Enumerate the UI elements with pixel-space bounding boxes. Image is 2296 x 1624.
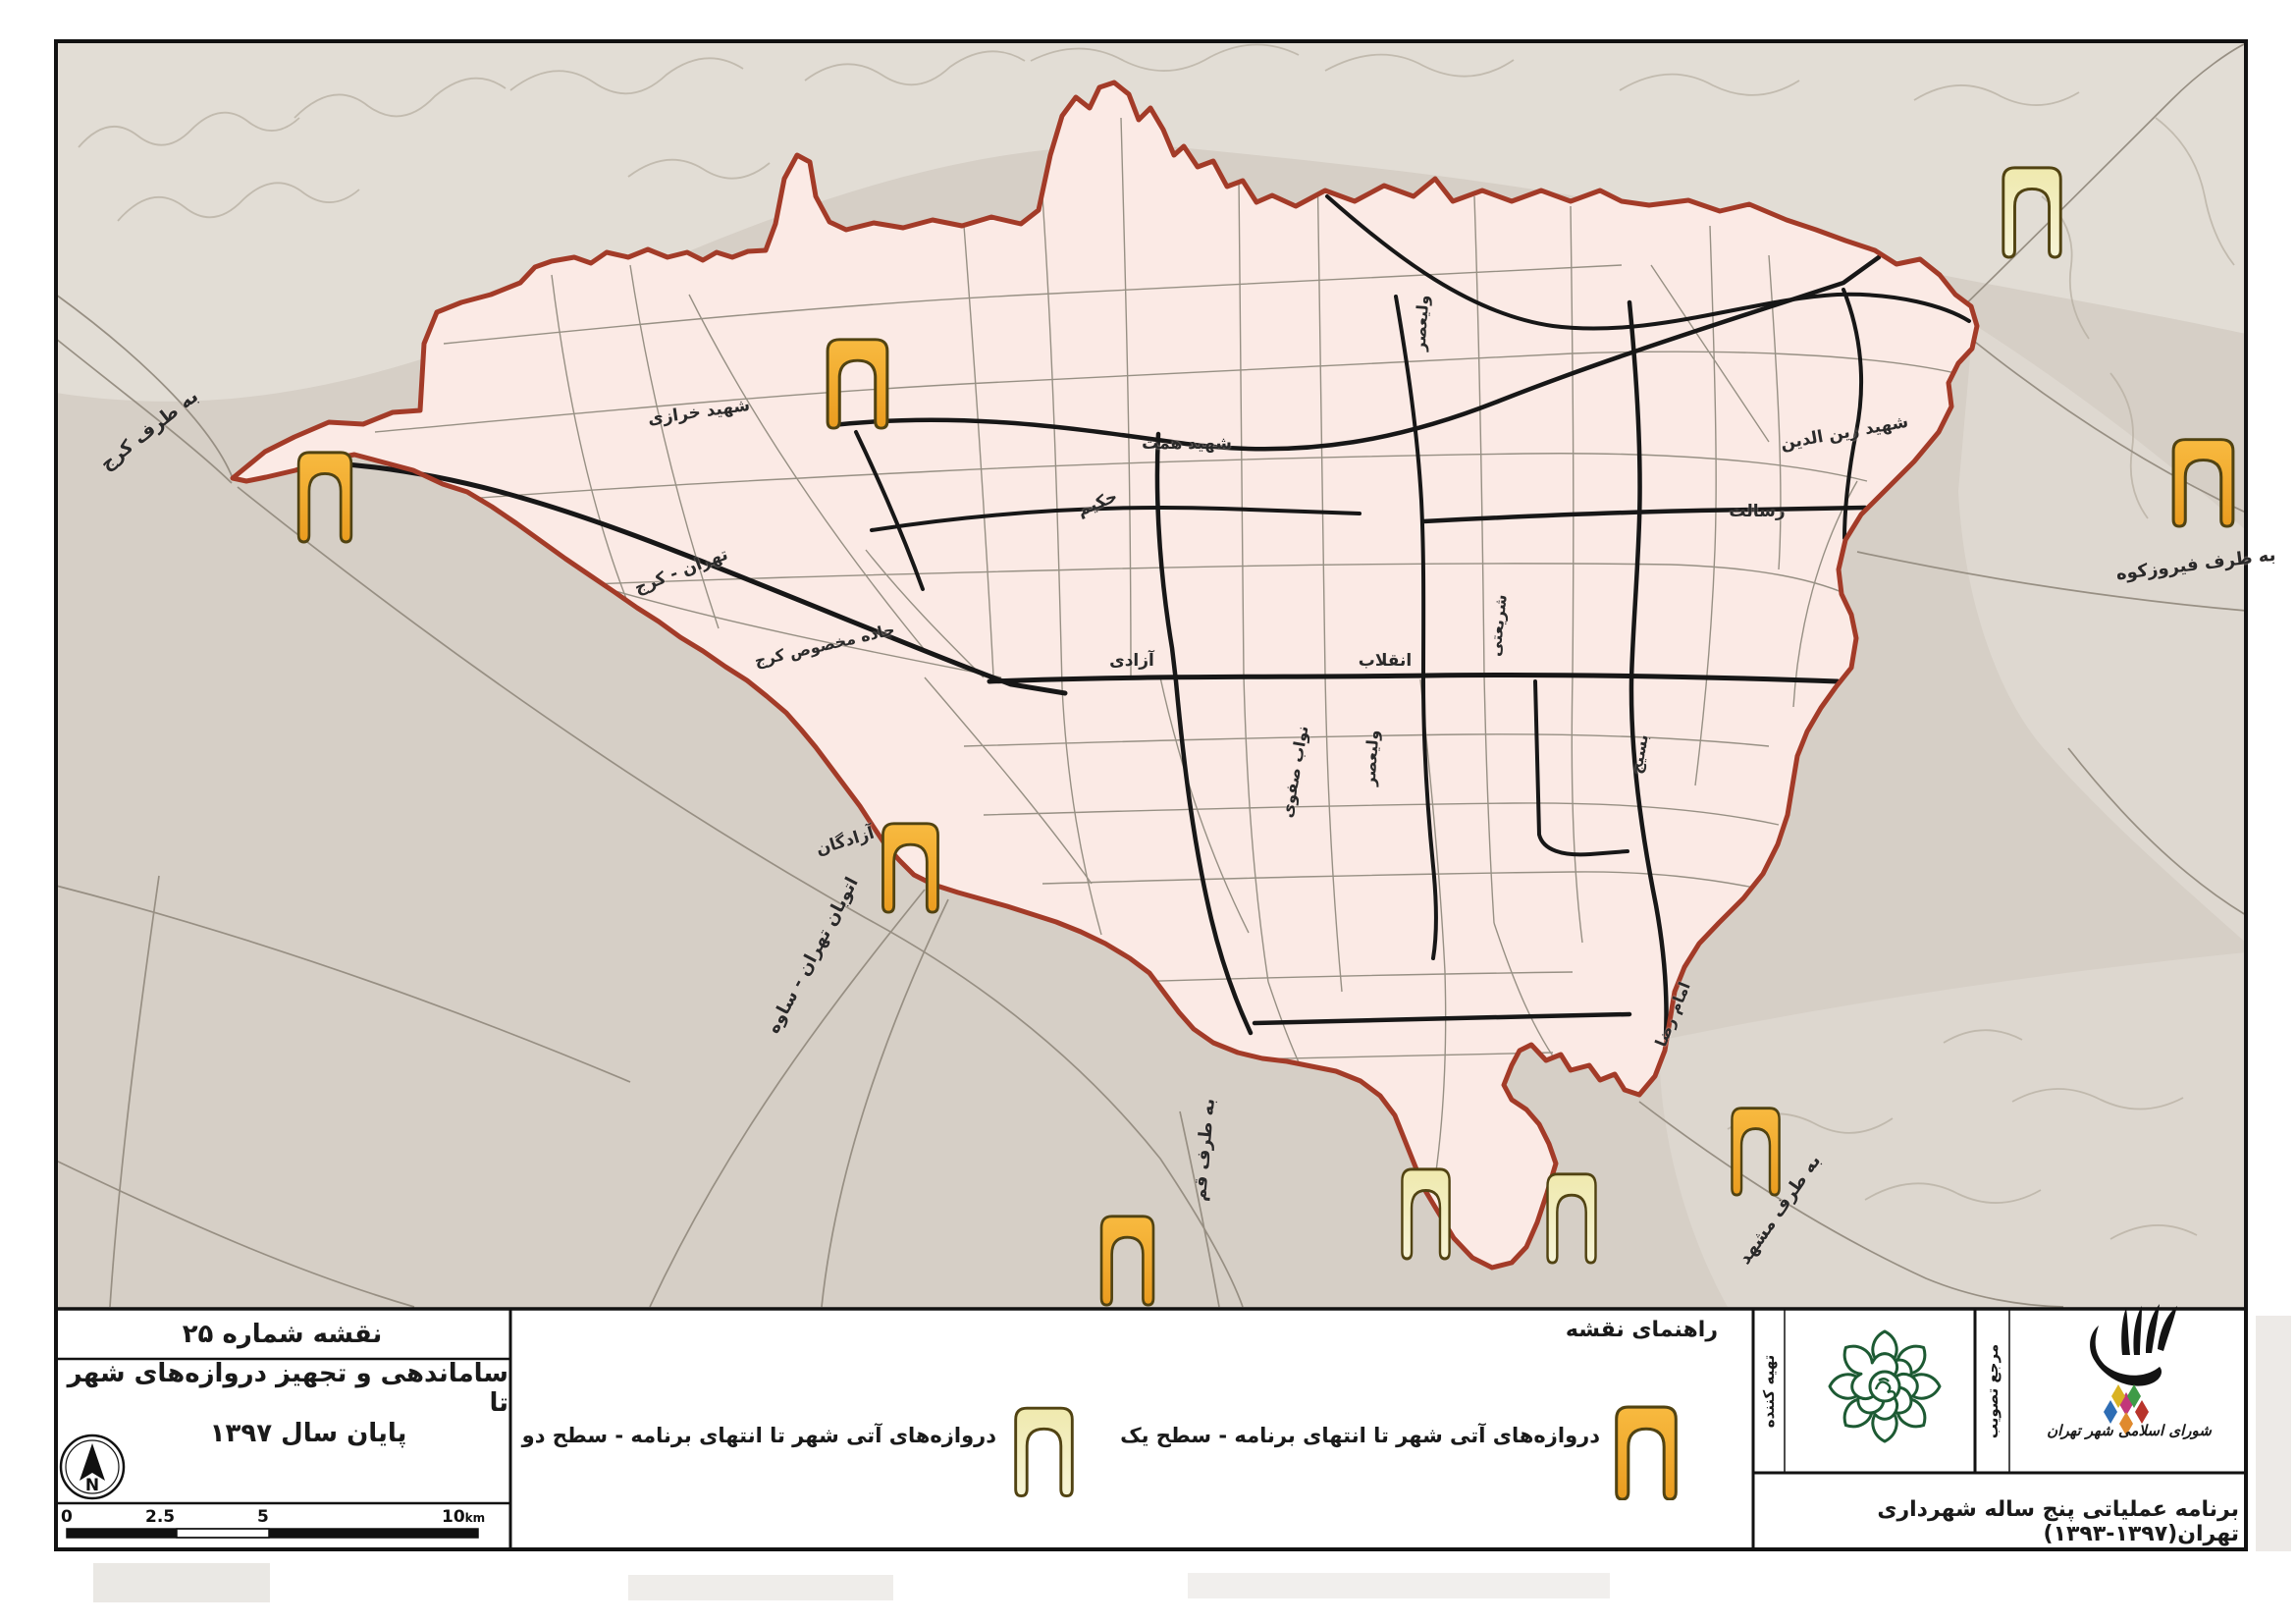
road-label: اتوبان تهران - ساوه	[763, 874, 863, 1037]
road-label: شهید خرازی	[647, 396, 751, 429]
legend-gate-level2-icon	[1008, 1399, 1080, 1500]
north-letter: N	[85, 1476, 99, 1495]
council-logo	[2090, 1304, 2177, 1435]
scale-label-25: 2.5	[145, 1507, 175, 1527]
map-number: نقشه شماره ۲۵	[56, 1312, 508, 1357]
approved-by-column: مرجع تصویب	[1976, 1309, 2009, 1473]
road-label: شریعتی	[1485, 593, 1511, 657]
road-label: به طرف مشهد	[1735, 1151, 1825, 1268]
legend-entry-level1-label: دروازه‌های آتی شهر تا انتهای برنامه - سط…	[1129, 1424, 1600, 1447]
road-label: نواب صفوی	[1277, 725, 1311, 820]
road-label: ولیعصر	[1411, 295, 1433, 352]
scale-label-5: 5	[257, 1507, 269, 1527]
map-sheet: N	[0, 0, 2296, 1624]
scan-artifact	[2256, 1316, 2291, 1551]
scale-unit: km	[465, 1511, 485, 1525]
road-labels-layer: به طرف کرجشهید خرازیتهران - کرججاده مخصو…	[0, 0, 2296, 1309]
road-label: رسالت	[1729, 502, 1785, 521]
road-label: به طرف کرج	[96, 385, 202, 474]
prepared-by-label: تهیه کننده	[1760, 1354, 1778, 1427]
map-title-line2: پایان سال ۱۳۹۷	[108, 1414, 508, 1453]
road-label: انقلاب	[1359, 651, 1412, 671]
road-label: آزادگان	[814, 824, 877, 860]
municipality-logo	[1827, 1328, 1942, 1443]
council-name: شورای اسلامی شهر تهران	[2020, 1422, 2238, 1461]
legend-title: راهنمای نقشه	[1472, 1318, 1718, 1342]
road-label: حکیم	[1075, 487, 1121, 520]
road-label: آزادی	[1109, 651, 1154, 671]
road-label: به طرف فیروزکوه	[2115, 545, 2277, 585]
road-label: بسیج	[1627, 732, 1652, 775]
map-title-line1: ساماندهی و تجهیز دروازه‌های شهر تا	[56, 1367, 508, 1410]
road-label: به طرف قم	[1190, 1098, 1219, 1203]
approved-by-label: مرجع تصویب	[1984, 1343, 2002, 1437]
road-label: ولیعصر	[1361, 730, 1383, 786]
prepared-by-column: تهیه کننده	[1753, 1309, 1785, 1473]
road-label: تهران - کرج	[632, 545, 731, 599]
legend-entry-level2-label: دروازه‌های آتی شهر تا انتهای برنامه - سط…	[530, 1424, 996, 1447]
scan-artifact	[628, 1575, 893, 1600]
scan-artifact	[93, 1563, 270, 1602]
legend-gate-level1-icon	[1607, 1401, 1685, 1500]
scale-label-0: 0	[61, 1507, 73, 1527]
program-title: برنامه عملیاتی پنج ساله شهرداری تهران(۱۳…	[1762, 1500, 2245, 1543]
scan-artifact	[1188, 1573, 1610, 1598]
road-label: شهید زین الدین	[1779, 412, 1909, 455]
scale-bar	[67, 1529, 478, 1538]
road-label: امام رضا	[1651, 979, 1694, 1049]
road-label: شهید همت	[1142, 434, 1232, 454]
road-label: جاده مخصوص کرج	[753, 620, 896, 670]
scale-label-10: 10km	[442, 1507, 485, 1527]
